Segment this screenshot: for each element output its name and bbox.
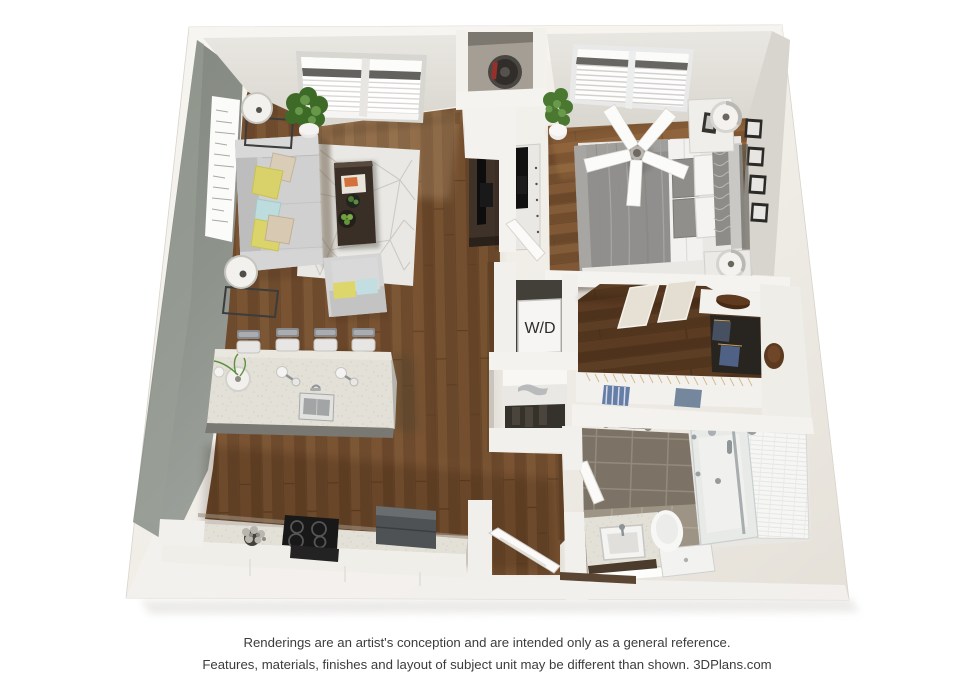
svg-text:Renderings are an artist's con: Renderings are an artist's conception an…: [243, 635, 730, 650]
svg-text:W/D: W/D: [524, 320, 555, 337]
svg-text:Features, materials, finishes: Features, materials, finishes and layout…: [202, 657, 771, 672]
